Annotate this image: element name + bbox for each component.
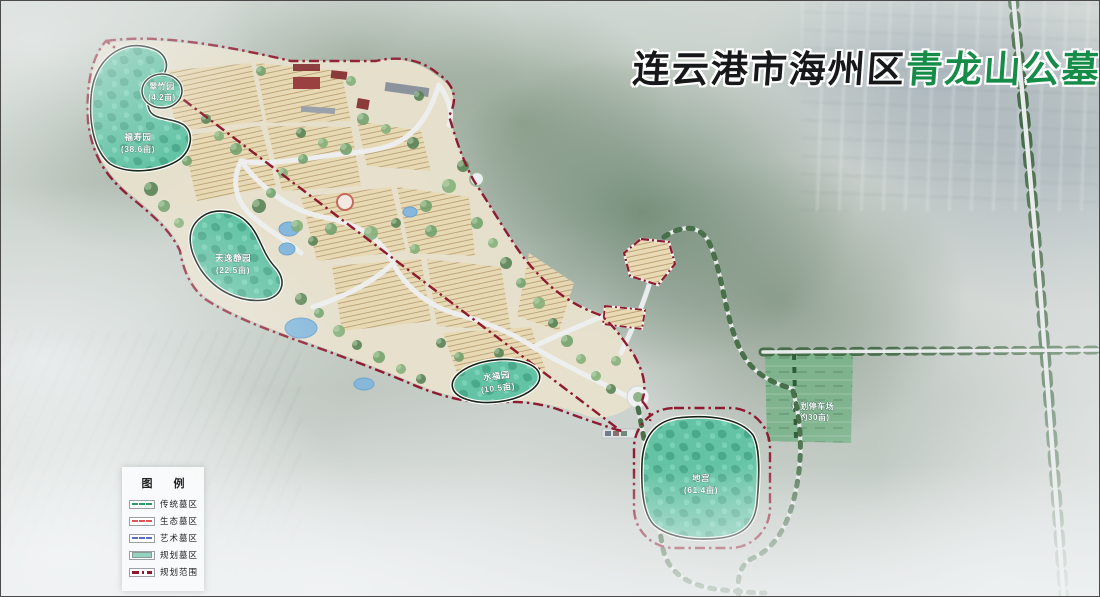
legend-label: 规划范围 xyxy=(160,566,198,578)
tianyijingyuan-label-name: 天逸静园 xyxy=(215,253,251,263)
east-plot-small xyxy=(603,306,645,329)
page-title: 连云港市海州区青龙山公墓 xyxy=(631,39,1035,93)
legend-item-planned: 规划墓区 xyxy=(129,549,197,561)
ecological-area-line-icon xyxy=(129,517,155,526)
legend-label: 规划墓区 xyxy=(160,549,198,561)
legend-item-art: 艺术墓区 xyxy=(129,532,197,544)
legend-label: 生态墓区 xyxy=(160,515,198,527)
legend-title: 图 例 xyxy=(129,475,197,491)
planning-map-canvas: 规划停车场 (约30亩) xyxy=(0,0,1100,597)
fushouyuan-label-name: 福寿园 xyxy=(123,132,151,142)
parking-label-size: (约30亩) xyxy=(796,412,829,422)
legend-item-planning-range: 规划范围 xyxy=(129,566,197,578)
cuizhuyuan-label-size: (4.2亩) xyxy=(148,92,175,102)
east-plot-pentagon xyxy=(624,239,675,285)
title-cemetery-part: 青龙山公墓 xyxy=(904,47,1100,91)
legend: 图 例 传统墓区 生态墓区 艺术墓区 规划墓区 规划范围 xyxy=(122,467,204,591)
art-area-line-icon xyxy=(129,534,155,543)
small-plaza xyxy=(337,194,353,210)
planned-area-cuizhuyuan: 翠竹园 (4.2亩) xyxy=(142,74,182,108)
legend-label: 传统墓区 xyxy=(160,498,198,510)
title-city-part: 连云港市海州区 xyxy=(631,47,907,91)
traditional-area-line-icon xyxy=(129,500,155,509)
planning-range-line-icon xyxy=(129,568,155,577)
digong-label-size: (61.4亩) xyxy=(684,485,718,495)
fushouyuan-label-size: (38.6亩) xyxy=(121,144,155,154)
tianyijingyuan-label-size: (22.5亩) xyxy=(216,265,250,275)
planned-area-digong: 地宫 (61.4亩) xyxy=(642,417,759,539)
legend-item-traditional: 传统墓区 xyxy=(129,498,197,510)
legend-item-ecological: 生态墓区 xyxy=(129,515,197,527)
legend-label: 艺术墓区 xyxy=(160,532,198,544)
cuizhuyuan-label-name: 翠竹园 xyxy=(149,81,175,91)
planned-parking-area: 规划停车场 (约30亩) xyxy=(765,353,853,443)
planned-area-swatch-icon xyxy=(129,551,155,560)
digong-label-name: 地宫 xyxy=(692,473,710,483)
